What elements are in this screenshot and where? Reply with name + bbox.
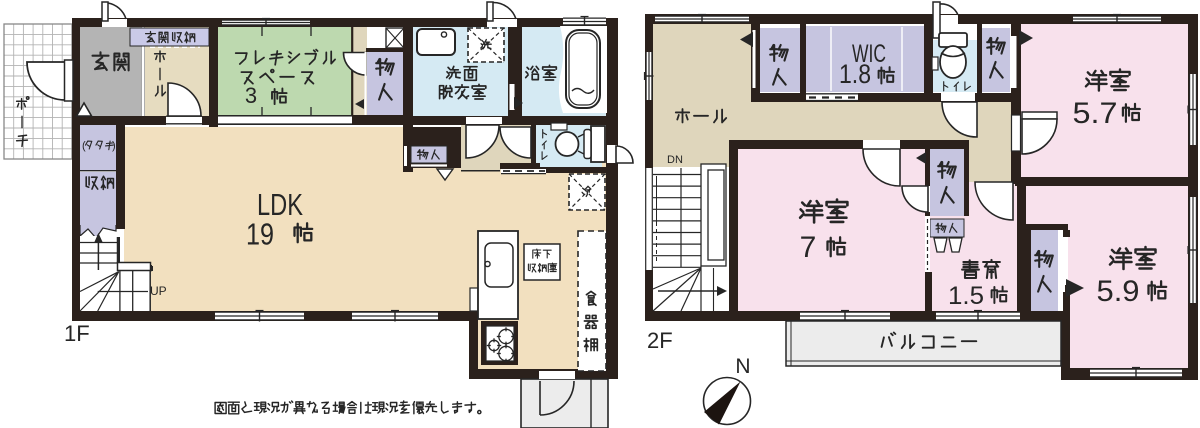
svg-text:(: (	[82, 140, 86, 152]
svg-text:1.5: 1.5	[948, 282, 984, 310]
svg-text:5.7: 5.7	[1073, 97, 1118, 130]
svg-text:5.9: 5.9	[1097, 275, 1140, 308]
svg-text:3: 3	[245, 83, 257, 108]
svg-text:): )	[112, 140, 116, 152]
svg-text:1.8: 1.8	[839, 59, 871, 89]
svg-text:1F: 1F	[64, 321, 90, 346]
svg-text:7: 7	[800, 231, 817, 264]
svg-text:DN: DN	[667, 154, 683, 166]
svg-text:19: 19	[246, 217, 274, 252]
svg-text:UP: UP	[150, 284, 167, 298]
svg-text:2F: 2F	[647, 328, 673, 353]
svg-text:N: N	[735, 355, 750, 378]
